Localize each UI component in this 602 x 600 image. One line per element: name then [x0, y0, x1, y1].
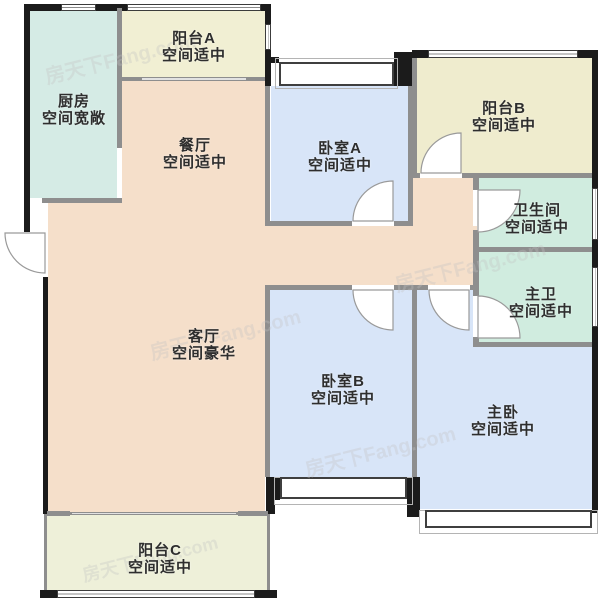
room-desc: 空间豪华: [172, 345, 236, 362]
floor-plan: 房天下Fang.com 房天下Fang.com 房天下Fang.com 房天下F…: [0, 0, 602, 600]
room-name: 阳台A: [162, 30, 226, 47]
room-desc: 空间适中: [472, 117, 536, 134]
room-name: 主卧: [471, 404, 535, 421]
room-label-master-bedroom: 主卧 空间适中: [471, 404, 535, 438]
room-name: 主卫: [509, 286, 573, 303]
room-label-balcony-c: 阳台C 空间适中: [128, 542, 192, 576]
room-label-bedroom-a: 卧室A 空间适中: [308, 140, 372, 174]
balcony-b-door-swing: [421, 133, 461, 173]
room-label-balcony-a: 阳台A 空间适中: [162, 30, 226, 64]
room-desc: 空间适中: [162, 47, 226, 64]
room-label-living: 客厅 空间豪华: [172, 328, 236, 362]
room-desc: 空间适中: [509, 303, 573, 320]
master-door-swing: [429, 290, 469, 330]
bedroom-b-door-swing: [353, 290, 393, 330]
room-name: 阳台C: [128, 542, 192, 559]
room-label-dining: 餐厅 空间适中: [163, 137, 227, 171]
room-name: 厨房: [42, 93, 106, 110]
room-name: 卧室A: [308, 140, 372, 157]
room-desc: 空间适中: [471, 421, 535, 438]
room-name: 阳台B: [472, 100, 536, 117]
room-desc: 空间宽敞: [42, 110, 106, 127]
room-label-kitchen: 厨房 空间宽敞: [42, 93, 106, 127]
room-name: 卧室B: [311, 373, 375, 390]
bedroom-a-door-swing: [353, 181, 393, 221]
room-desc: 空间适中: [308, 157, 372, 174]
room-label-master-bath: 主卫 空间适中: [509, 286, 573, 320]
room-desc: 空间适中: [505, 219, 569, 236]
room-label-balcony-b: 阳台B 空间适中: [472, 100, 536, 134]
room-name: 餐厅: [163, 137, 227, 154]
room-name: 卫生间: [505, 202, 569, 219]
room-name: 客厅: [172, 328, 236, 345]
room-desc: 空间适中: [311, 390, 375, 407]
room-desc: 空间适中: [128, 559, 192, 576]
room-label-bedroom-b: 卧室B 空间适中: [311, 373, 375, 407]
room-label-bathroom: 卫生间 空间适中: [505, 202, 569, 236]
entrance-door-swing: [5, 233, 45, 273]
room-desc: 空间适中: [163, 154, 227, 171]
